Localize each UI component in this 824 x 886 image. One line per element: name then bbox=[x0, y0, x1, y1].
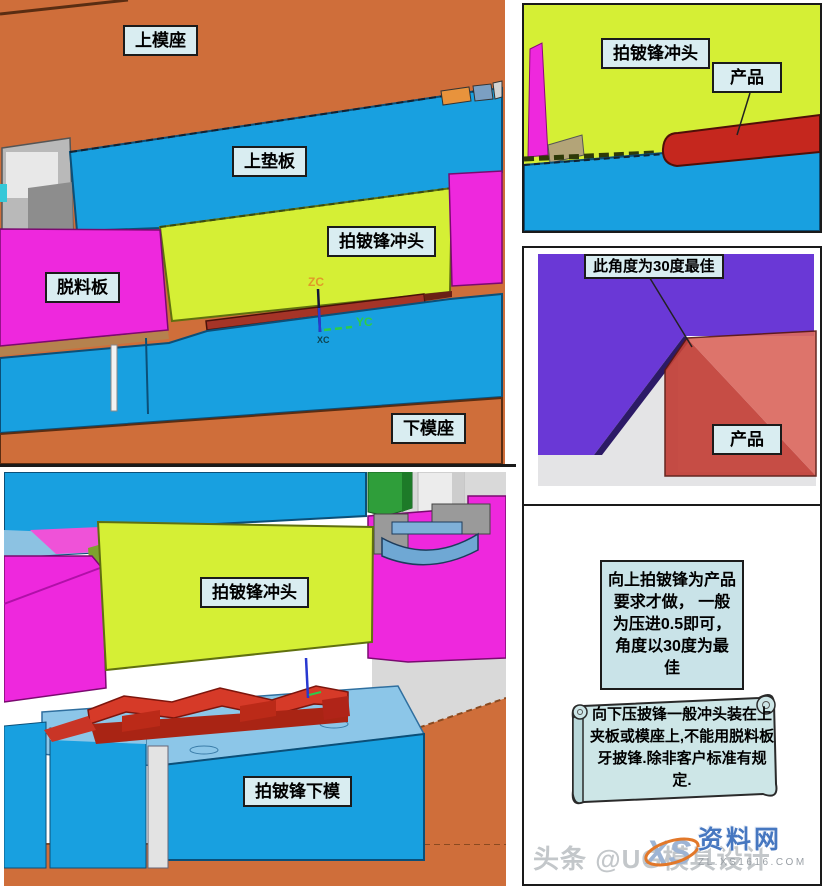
note-downward-burr-scroll: 向下压披锋一般冲头装在上夹板或模座上,不能用脱料板牙披锋.除非客户标准有规定. bbox=[566, 690, 792, 820]
site-logo: XS 资料网 ZL.XS1616.COM bbox=[642, 820, 807, 878]
label-angle-note: 此角度为30度最佳 bbox=[584, 254, 724, 279]
label-upper-die-base: 上模座 bbox=[123, 25, 198, 56]
xc-axis-label: XC bbox=[317, 335, 330, 345]
label-product-closeup: 产品 bbox=[712, 62, 782, 93]
label-burr-punch-3d: 拍铍锋冲头 bbox=[200, 577, 309, 608]
panel-notes: 向上拍铍锋为产品要求才做， 一般为压进0.5即可，角度以30度为最佳 向下压披锋… bbox=[522, 504, 822, 886]
left-block bbox=[4, 722, 46, 868]
label-product-angle: 产品 bbox=[712, 424, 782, 455]
panel-mold-3d-view: 拍铍锋冲头 拍铍锋下模 bbox=[4, 472, 506, 886]
yc-axis-label: YC bbox=[356, 315, 373, 329]
label-burr-punch: 拍铍锋冲头 bbox=[327, 226, 436, 257]
left-block bbox=[50, 728, 146, 868]
angle-detail-drawing bbox=[524, 248, 820, 506]
xs-logo-icon: XS bbox=[642, 820, 704, 878]
panel-mold-section-overview: ZC XC YC 上模座 上垫板 拍铍锋冲头 脱料板 下模座 bbox=[0, 0, 505, 464]
panel-angle-detail: 此角度为30度最佳 产品 bbox=[522, 246, 822, 508]
note-upward-burr: 向上拍铍锋为产品要求才做， 一般为压进0.5即可，角度以30度为最佳 bbox=[600, 560, 744, 690]
logo-domain: ZL.XS1616.COM bbox=[698, 857, 807, 868]
tutorial-sheet: ZC XC YC 上模座 上垫板 拍铍锋冲头 脱料板 下模座 bbox=[0, 0, 824, 886]
label-stripper-plate: 脱料板 bbox=[45, 272, 120, 303]
label-lower-die-base: 下模座 bbox=[391, 413, 466, 444]
label-upper-backing-plate: 上垫板 bbox=[232, 146, 307, 177]
logo-name: 资料网 bbox=[698, 820, 807, 856]
label-burr-punch-closeup: 拍铍锋冲头 bbox=[601, 38, 710, 69]
clamp-plate-left bbox=[4, 556, 106, 702]
zc-axis-label: ZC bbox=[308, 275, 324, 289]
slot bbox=[148, 746, 168, 868]
left-column-divider bbox=[0, 464, 516, 467]
pin bbox=[111, 345, 117, 411]
note-downward-burr: 向下压披锋一般冲头装在上夹板或模座上,不能用脱料板牙披锋.除非客户标准有规定. bbox=[588, 704, 776, 792]
panel-punch-closeup: 拍铍锋冲头 产品 bbox=[522, 3, 822, 233]
mold-3d-drawing bbox=[4, 472, 506, 886]
label-burr-lower-die: 拍铍锋下模 bbox=[243, 776, 352, 807]
